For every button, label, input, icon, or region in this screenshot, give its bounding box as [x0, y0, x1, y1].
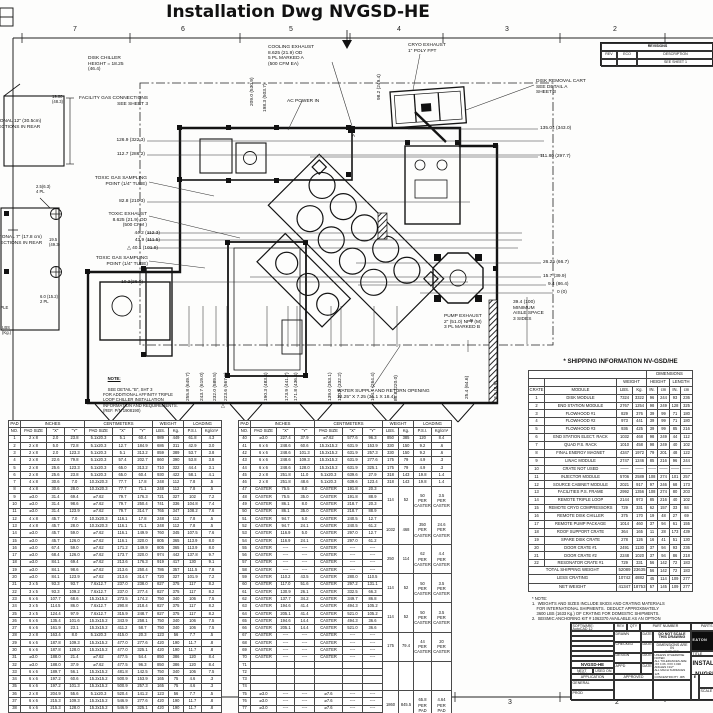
cell: CASTER — [251, 610, 277, 617]
cell: 77.7 — [113, 479, 133, 486]
cell: 106 — [184, 618, 202, 625]
cell: .3 — [432, 464, 452, 471]
callout-label: 43.9 (111.5) — [135, 238, 160, 244]
cell: 112 — [169, 479, 184, 486]
cell: 320.0 — [133, 537, 153, 544]
cell: 60.4 — [133, 435, 153, 442]
scale-cell: SCALE 1:24 — [699, 688, 713, 701]
cell: ⌀7.6 — [315, 698, 343, 705]
cell: 639.6 — [343, 472, 363, 479]
cell: DOOR CRATE #2 — [545, 552, 617, 560]
table-row: 75⌀3.0--------⌀7.6--------1860845.565.8 … — [239, 690, 452, 697]
cell: 123.9 — [65, 508, 85, 515]
cell: 176.3 — [133, 493, 153, 500]
dimensions-header: DIMENSIONS — [647, 371, 693, 379]
cell: ⌀3.0 — [21, 501, 47, 508]
cell: 1254 — [633, 402, 647, 410]
cell: ---- — [295, 698, 315, 705]
cell: 248 — [153, 515, 169, 522]
cell: 4 x 8 — [21, 515, 47, 522]
cell: 123.4 — [363, 479, 383, 486]
cell: 741 — [153, 501, 169, 508]
cell: 686 — [153, 442, 169, 449]
cell: 213.6 — [113, 574, 133, 581]
cell: CASTER — [315, 647, 343, 654]
cell: 86.1 — [277, 501, 295, 508]
cell — [343, 676, 363, 683]
cell: 123.3 — [65, 464, 85, 471]
cell: ---- — [295, 705, 315, 712]
cell: ---- — [363, 566, 383, 573]
cell: 175 — [383, 632, 399, 661]
cell: CASTER — [251, 486, 277, 493]
col-header: PAD — [9, 421, 21, 428]
cell: 313.2 — [133, 464, 153, 471]
cell: 720 — [153, 574, 169, 581]
cell: 35.0 — [295, 508, 315, 515]
cell: 7.8 — [202, 566, 222, 573]
cell — [343, 683, 363, 690]
cell: REMOTE CRYO COMPRESSORS — [545, 505, 617, 513]
cell: ⌀3.0 — [251, 705, 277, 712]
cell: 165 — [633, 528, 647, 536]
cell: 2.0 — [47, 450, 65, 457]
cell: 75 — [169, 683, 184, 690]
pad-table-left-body: 12 x 82.023.85.1x20.35.160.498944961.84.… — [9, 435, 222, 713]
cell: 365 — [169, 537, 184, 544]
cell: 15.2x15.2 — [85, 596, 113, 603]
cell: 117 — [184, 610, 202, 617]
cell: 349.7 — [343, 596, 363, 603]
cell: 37 — [647, 552, 658, 560]
cell: 29 — [9, 639, 21, 646]
cell: ⌀7.6 — [315, 690, 343, 697]
cell — [277, 676, 295, 683]
cell: 250.4 — [133, 566, 153, 573]
cell: REMOTE PUMP PACKAGE — [545, 520, 617, 528]
cell: 251.8 — [277, 479, 295, 486]
cell: 974 — [153, 552, 169, 559]
cell: 2.0 — [47, 435, 65, 442]
cell: 117.0 — [277, 581, 295, 588]
cell: 2589 — [633, 473, 647, 481]
qty-header: QTY — [627, 623, 640, 631]
cell: 112 — [169, 523, 184, 530]
cell: 2 x 8 — [21, 435, 47, 442]
parts-list-header: PARTS LIST — [691, 623, 713, 631]
cell: 860 — [153, 457, 169, 464]
cell: 237.0 — [113, 588, 133, 595]
cell: 99 — [658, 410, 670, 418]
cell: 101.6 — [65, 618, 85, 625]
cell: 86.1 — [277, 508, 295, 515]
cell — [363, 683, 383, 690]
cell: ---- — [343, 647, 363, 654]
table-row: NET WEIGHT4134718753 — [529, 583, 647, 591]
table-row: 15⌀3.045.7126.0⌀7.62116.1320.0805365113.… — [9, 537, 222, 544]
callout-label: DISK CHILLER HEIGHT = 18.25 (46.4) — [88, 56, 124, 73]
cell: CASTER — [315, 537, 343, 544]
cell: ---- — [295, 566, 315, 573]
cell: 54.4 — [133, 654, 153, 661]
cell: 79.7 — [113, 508, 133, 515]
cell: CASTER — [315, 574, 343, 581]
cell: 79 — [647, 449, 658, 457]
cell: 520.4 — [113, 690, 133, 697]
cell: 411.2 — [113, 625, 133, 632]
cell: 76 — [239, 698, 251, 705]
cell: 710 — [153, 464, 169, 471]
cell: NET WEIGHT — [529, 583, 617, 591]
cell: FINAL ENERGY MAGNET — [545, 449, 617, 457]
table-row: 376 x 6215.3109.315.2x15.2546.9277.64201… — [9, 698, 222, 705]
cell: 71 — [239, 661, 251, 668]
cell: 60.4 — [133, 472, 153, 479]
cell: 250 — [383, 545, 399, 574]
shipping-table: DIMENSIONS WEIGHT HEIGHT LENGTH CRATE MO… — [528, 370, 693, 592]
cell: 386 — [169, 661, 184, 668]
note-b-block: NOTE: SEE DETAIL "B", SHT 3 FOR ADDITION… — [103, 371, 178, 418]
callout-label: LBS (Kg.) — [2, 326, 11, 336]
cell: 2248 — [617, 552, 633, 560]
table-row: 266 x 6135.4101.615.2x15.2343.9258.17503… — [9, 618, 222, 625]
cell: 86 — [670, 552, 681, 560]
cell: 2144 — [617, 497, 633, 505]
cell: 4 — [529, 418, 545, 426]
prod-cell: PROD — [571, 690, 614, 701]
cell: 1972 — [633, 449, 647, 457]
cell: ---- — [277, 654, 295, 661]
cell: 43.5 — [295, 574, 315, 581]
do-not-scale-cell: DO NOT SCALE THIS DRAWING — [653, 631, 691, 642]
cell: ---- — [343, 639, 363, 646]
callout-label: 25.4 (64.6) — [465, 376, 471, 399]
cell: 65.8 PER PAD — [414, 690, 432, 713]
cell: 106 — [184, 669, 202, 676]
cell: ROOF SUPPORT CRATE — [545, 528, 617, 536]
cell: 14.4 — [295, 625, 315, 632]
cell: 12 — [9, 515, 21, 522]
cell: 43 — [239, 457, 251, 464]
cell: 439 — [681, 528, 693, 536]
cell: 4 x 8 — [21, 486, 47, 493]
cell: 33 — [9, 669, 21, 676]
cell: 113.9 — [184, 537, 202, 544]
cell: 98 — [647, 434, 658, 442]
cell: .5 — [202, 632, 222, 639]
cell: ---- — [363, 559, 383, 566]
cell: 248.6 — [277, 442, 295, 449]
cell: ⌀7.62 — [85, 508, 113, 515]
cell: 7.8 — [184, 486, 202, 493]
cell: 257.3 — [133, 683, 153, 690]
cell — [315, 661, 343, 668]
cell: 194.6 — [277, 603, 295, 610]
cell: 96.3 — [363, 435, 383, 442]
cell: 325.1 — [363, 464, 383, 471]
table-row: 282 x 8163.48.05.1x20.3415.020.3123567.7… — [9, 632, 222, 639]
note-b-heading: NOTE: — [108, 376, 121, 381]
col-header: Kg/cm² — [202, 428, 222, 435]
cell: 3.0 — [202, 442, 222, 449]
cell: 5.1x20.3 — [85, 450, 113, 457]
cell: ⌀7.62 — [85, 552, 113, 559]
cell: 1860 — [383, 690, 399, 713]
cell: 3.8 — [202, 450, 222, 457]
cell: 8.0 — [65, 632, 85, 639]
cell: 7.2 — [202, 574, 222, 581]
cell: 107.7 — [47, 596, 65, 603]
cell: CASTER — [315, 515, 343, 522]
cell: 94.7 — [277, 515, 295, 522]
table-row: 243 x 5114.586.07.6x12.7290.8218.4827375… — [9, 603, 222, 610]
blank-header — [545, 378, 617, 386]
cell: 48 — [658, 513, 670, 521]
in-header: IN. — [647, 386, 658, 394]
cell: 257.3 — [363, 450, 383, 457]
cell: 468 — [399, 515, 414, 544]
cell: 350 PER CASTER — [414, 515, 432, 544]
cell: 385 — [399, 435, 414, 442]
callout-label: COOLING EXHAUST 8.625 (21.9) OD 5 PL MAR… — [268, 45, 314, 68]
cell: 244 — [658, 394, 670, 402]
col-header: "X" — [47, 428, 65, 435]
cell: 750 — [153, 625, 169, 632]
table-row: 7QUAD P.S. RACK10104589824940102 — [529, 442, 693, 450]
cell: DOOR CRATE #1 — [545, 544, 617, 552]
cell: 142.5 — [133, 669, 153, 676]
table-row: 223 x 593.3109.27.6x12.7237.0277.4827375… — [9, 588, 222, 595]
checked-cell: CHECKED — [614, 642, 641, 653]
cell: 6 x 6 — [21, 683, 47, 690]
cell: 173 — [681, 481, 693, 489]
cell: 197.2 — [47, 683, 65, 690]
cell: CASTER — [315, 581, 343, 588]
cell: 16 — [9, 545, 21, 552]
cell: 60.6 — [65, 676, 85, 683]
cell: 27 — [9, 625, 21, 632]
table-row: LESS CRATING107424882 — [529, 575, 647, 583]
cell: 3 x 5 — [21, 610, 47, 617]
cell: ⌀3.0 — [21, 493, 47, 500]
cell: 4.4 PER CASTER — [432, 545, 452, 574]
col-header: "Y" — [295, 428, 315, 435]
cell: 325.1 — [133, 647, 153, 654]
cell: 56 — [239, 552, 251, 559]
cell: CASTER — [315, 545, 343, 552]
cell: CASTER — [251, 574, 277, 581]
cell: 183 — [681, 560, 693, 568]
cell: ⌀7.62 — [85, 566, 113, 573]
cell: 10.2x20.3 — [85, 486, 113, 493]
cell: CASTER — [251, 632, 277, 639]
cell: 297.0 — [343, 537, 363, 544]
cell: ---- — [343, 552, 363, 559]
cell: 20 PER CASTER — [432, 632, 452, 661]
cell: 415.0 — [113, 632, 133, 639]
cell: 17.8 — [133, 479, 153, 486]
cell: 149.9 — [133, 545, 153, 552]
cell: 1246 — [633, 457, 647, 465]
cell: 2 x 8 — [21, 442, 47, 449]
cell — [251, 669, 277, 676]
cell: —— — [670, 465, 681, 473]
cell: 3.5 PER CASTER — [432, 574, 452, 603]
cell: 101.3 — [295, 450, 315, 457]
cell: 375 — [169, 610, 184, 617]
callout-label: △ 40.1 (101.9) — [127, 246, 158, 252]
cell: .8 — [202, 698, 222, 705]
cell: 41.4 — [295, 610, 315, 617]
callout-label: 19.5 (49.3) — [49, 238, 60, 248]
crate-header: CRATE — [529, 386, 545, 394]
cell: 2 x 8 — [251, 479, 277, 486]
cell: 116.1 — [113, 537, 133, 544]
cell: 75.5 — [277, 486, 295, 493]
cell: ---- — [363, 552, 383, 559]
cell: 8.2 — [202, 603, 222, 610]
cell: 72 — [670, 560, 681, 568]
cell: 26.1 — [295, 588, 315, 595]
table-row: 67CASTER--------CASTER--------17579.444 … — [239, 632, 452, 639]
cell: CRATE NOT USED — [545, 465, 617, 473]
callout-label: 171.8 (436.4) — [294, 372, 300, 401]
cell: 5.1x20.3 — [85, 457, 113, 464]
cell — [363, 661, 383, 668]
cell: FLOWHOOD #2 — [545, 418, 617, 426]
cell: ---- — [295, 559, 315, 566]
general-cell: GENERAL — [571, 680, 614, 690]
cell: 827 — [153, 603, 169, 610]
cell: ---- — [343, 545, 363, 552]
cell: 14 — [529, 497, 545, 505]
cell: 1 — [529, 394, 545, 402]
cell: 248.6 — [277, 464, 295, 471]
cell: 113.9 — [184, 545, 202, 552]
cell: 5.1x20.3 — [315, 479, 343, 486]
cell: 2 x 8 — [21, 457, 47, 464]
cell: 20.3 — [133, 632, 153, 639]
table-row: 12 x 82.023.85.1x20.35.160.498944961.84.… — [9, 435, 222, 442]
cell: 10.2x20.3 — [85, 479, 113, 486]
cell: 4.9 — [414, 457, 432, 464]
cell: 51.6 — [295, 581, 315, 588]
cm-header: cm — [658, 386, 670, 394]
cell: 330 — [383, 442, 399, 449]
revision-block: REVISIONS REV ECO DESCRIPTION SEE SHEET … — [600, 42, 713, 66]
cell: 187.8 — [47, 639, 65, 646]
cell: CASTER — [251, 603, 277, 610]
cell: 750 — [153, 618, 169, 625]
cell: 187.8 — [47, 647, 65, 654]
cell: 1010 — [617, 442, 633, 450]
cell: 2 x 8 — [21, 632, 47, 639]
cell: 425 — [633, 426, 647, 434]
cell: 21 — [9, 581, 21, 588]
cell: 142 — [658, 568, 670, 576]
cell: 449 — [169, 435, 184, 442]
table-row: 12SOURCE CABINET MODULE20219179724668173 — [529, 481, 693, 489]
callout-label: 112.7 (286.2) — [117, 152, 145, 158]
cell: 23.8 — [65, 472, 85, 479]
callout-label: ADDITIONAL 7" (17.8 cm) CONNECTIONS IN R… — [0, 235, 42, 246]
table-row: 253 x 5124.497.97.6x12.7315.9248.7827375… — [9, 610, 222, 617]
cell: 477.5 — [113, 661, 133, 668]
cell: 251.8 — [277, 472, 295, 479]
cell: 5.1x20.3 — [85, 632, 113, 639]
cell: .5 — [202, 690, 222, 697]
cell: 376 — [633, 410, 647, 418]
cell — [277, 661, 295, 668]
cell: 180 — [681, 410, 693, 418]
cell: 8.0 — [202, 537, 222, 544]
cell: 53.7 — [184, 450, 202, 457]
cell: 577.6 — [343, 435, 363, 442]
col-header: PAD — [239, 421, 251, 428]
shipping-notes: * NOTE: 1. WEIGHTS AND SIZES INCLUDE SKI… — [532, 596, 665, 622]
callout-label: 135.04 (343.0) — [540, 126, 571, 132]
cell: 11.7 — [184, 639, 202, 646]
cell: ---- — [363, 632, 383, 639]
cell: 322 — [169, 464, 184, 471]
kg-header: Kg. — [633, 386, 647, 394]
cell: 8 — [529, 449, 545, 457]
drawn-cell: DRAWN — [614, 631, 641, 642]
cell: 4882 — [633, 575, 647, 583]
cell: 546.9 — [113, 698, 133, 705]
cell: 109.3 — [295, 457, 315, 464]
cell: 6 — [9, 472, 21, 479]
pad-table-left: PAD INCHES CENTIMETERS WEIGHT LOADING NO… — [8, 420, 222, 713]
cell: 5 — [529, 426, 545, 434]
cell: ---- — [363, 705, 383, 712]
cell: 420 — [153, 647, 169, 654]
table-row: 416 x 6248.660.615.2x15.2631.9153.933015… — [239, 442, 452, 449]
callout-label: 243.7 (619.0) — [200, 372, 206, 401]
cell — [295, 683, 315, 690]
cell: ---- — [295, 654, 315, 661]
cell: 15.2x15.2 — [315, 464, 343, 471]
table-row: 9LINAC MODULE274712468521696244 — [529, 457, 693, 465]
cell: 130 — [184, 559, 202, 566]
cell: 58.1 — [184, 472, 202, 479]
cell: 39 — [647, 410, 658, 418]
cell: .5 — [202, 515, 222, 522]
cell: .5 — [202, 479, 222, 486]
cell: 62 — [239, 596, 251, 603]
cell: ⌀7.62 — [85, 530, 113, 537]
cell: 116.9 — [277, 530, 295, 537]
cell: 249 — [658, 402, 670, 410]
cell: 10 — [9, 501, 21, 508]
cell: ⌀3.0 — [21, 566, 47, 573]
cell: ---- — [363, 654, 383, 661]
cell: 23635 — [633, 567, 647, 575]
callout-label: AC POWER IN — [287, 99, 319, 105]
cell: 236 — [681, 544, 693, 552]
cell: 314.7 — [133, 574, 153, 581]
description-col-header: DESCRIPTION — [637, 51, 713, 59]
table-row: 124 x 845.77.010.2x20.3116.117.82481127.… — [9, 515, 222, 522]
cell: 9.2 — [414, 442, 432, 449]
cell: 280.0 — [343, 574, 363, 581]
cell: 191.8 — [343, 493, 363, 500]
shipping-totals: TOTAL SHIPPING WEIGHT5208923635LESS CRAT… — [528, 566, 647, 592]
cell: —— — [617, 465, 633, 473]
cell: 8 — [9, 486, 21, 493]
cell: 258.1 — [133, 618, 153, 625]
cell: 79.4 — [399, 632, 414, 661]
